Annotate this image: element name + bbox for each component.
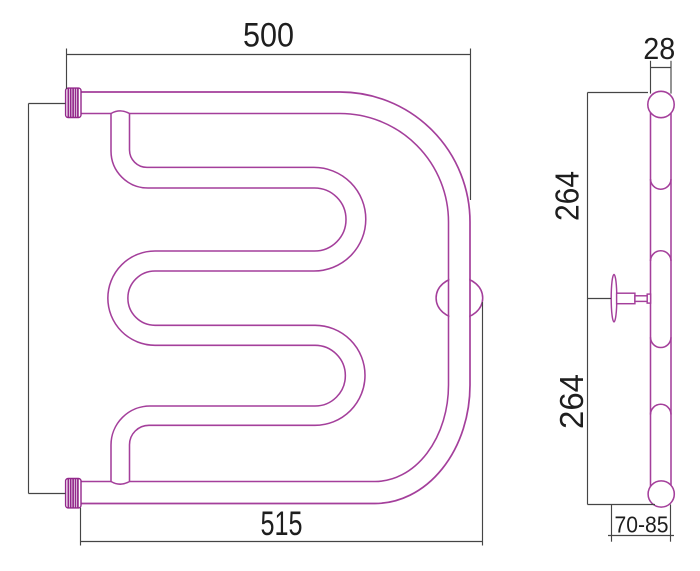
svg-text:28: 28 [643, 31, 675, 66]
svg-text:500: 500 [243, 17, 294, 55]
svg-text:264: 264 [553, 374, 590, 429]
svg-text:515: 515 [261, 505, 303, 543]
svg-text:264: 264 [549, 171, 586, 221]
svg-text:70-85: 70-85 [615, 511, 669, 537]
